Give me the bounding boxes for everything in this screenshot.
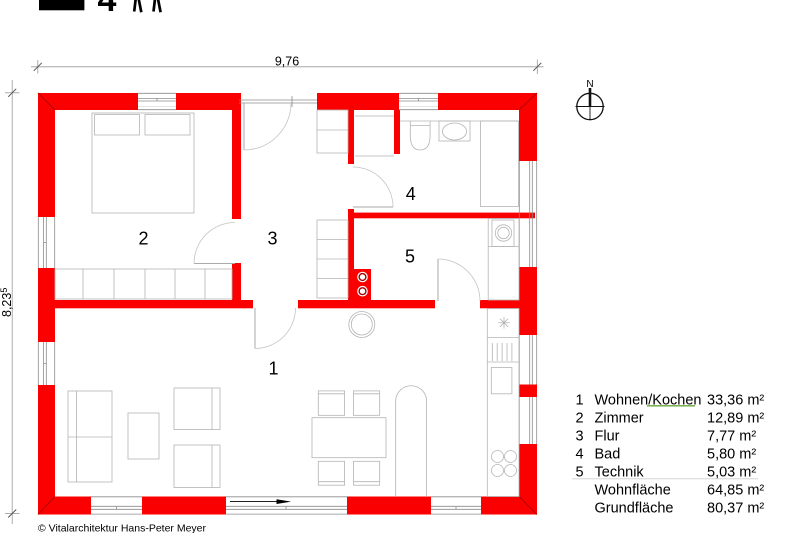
svg-text:7,77 m²: 7,77 m² [707,429,756,445]
svg-text:Grundfläche: Grundfläche [595,501,674,517]
svg-text:Flur: Flur [595,429,620,445]
svg-text:9,76: 9,76 [275,55,299,69]
svg-text:5,80 m²: 5,80 m² [707,447,756,463]
svg-text:Technik: Technik [595,465,645,481]
svg-text:2: 2 [576,411,584,427]
svg-text:2: 2 [138,228,148,248]
svg-text:5: 5 [405,247,415,267]
svg-text:5: 5 [576,465,584,481]
svg-text:33,36 m²: 33,36 m² [707,393,764,409]
svg-text:1: 1 [268,359,278,379]
svg-text:5,03 m²: 5,03 m² [707,465,756,481]
svg-text:1: 1 [576,393,584,409]
svg-text:Zimmer: Zimmer [595,411,644,427]
svg-text:3: 3 [576,429,584,445]
svg-text:Wohnfläche: Wohnfläche [595,483,671,499]
svg-text:Bad: Bad [595,447,621,463]
svg-text:4: 4 [406,184,416,204]
svg-text:3: 3 [267,228,277,248]
svg-text:N: N [586,79,593,90]
svg-text:© Vitalarchitektur Hans-Peter: © Vitalarchitektur Hans-Peter Meyer [38,523,207,533]
svg-text:80,37 m²: 80,37 m² [707,501,764,517]
svg-text:4: 4 [576,447,584,463]
svg-text:64,85 m²: 64,85 m² [707,483,764,499]
svg-text:4: 4 [98,0,117,19]
svg-text:12,89 m²: 12,89 m² [707,411,764,427]
